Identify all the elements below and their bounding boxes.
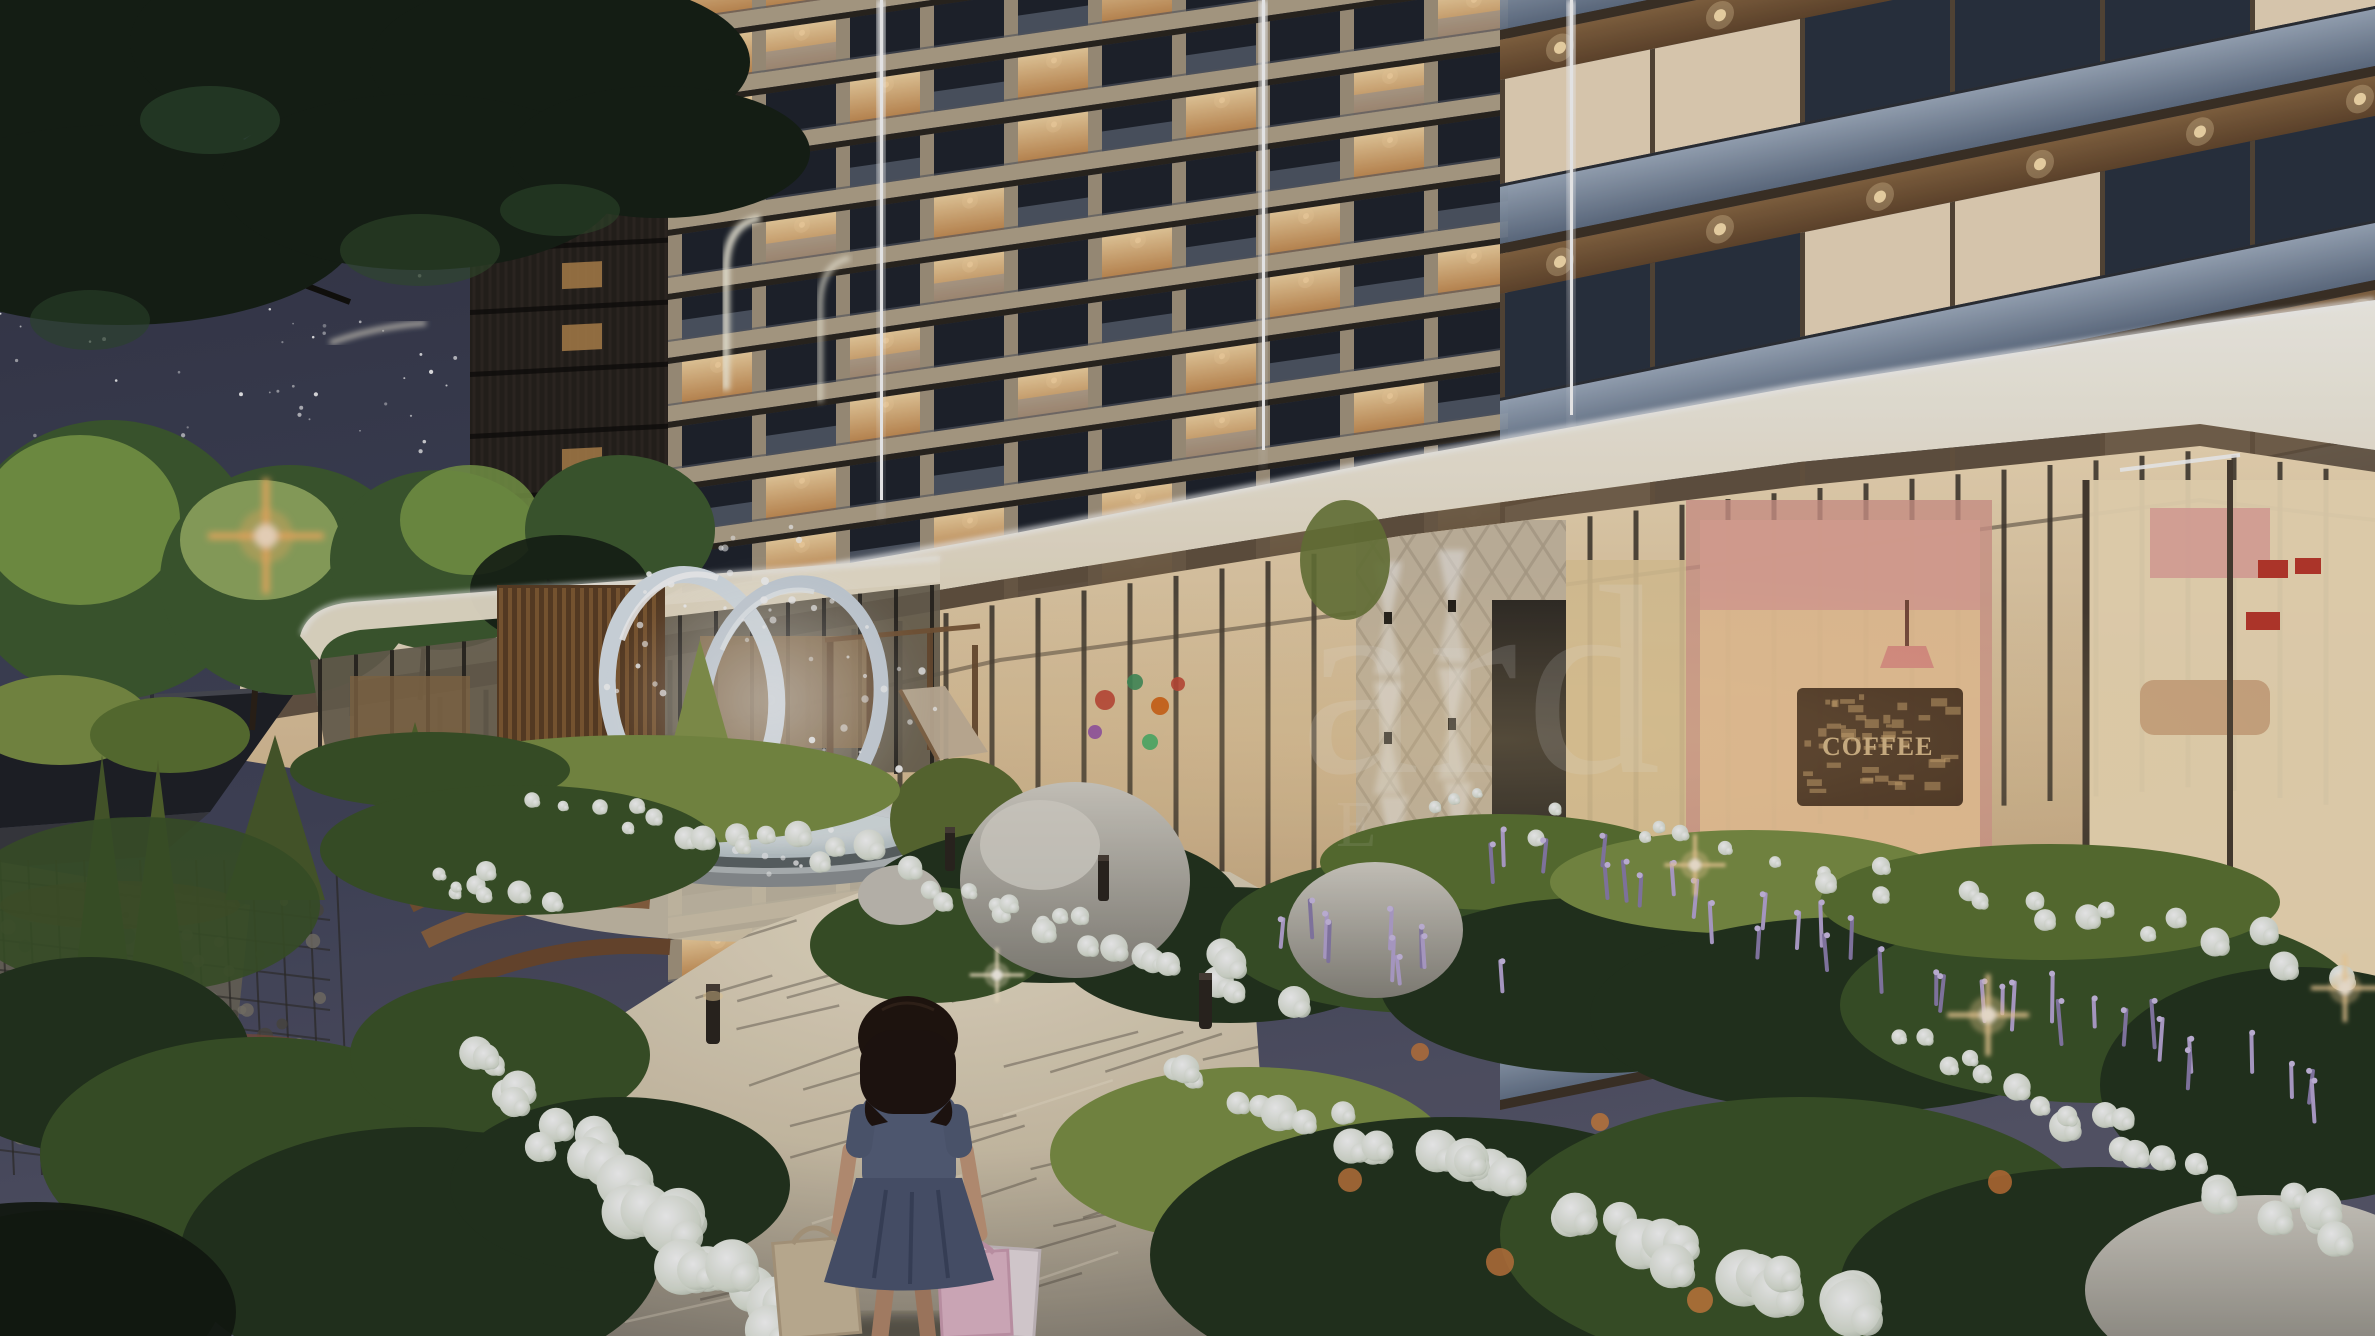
night-render-scene: COFFEE [0,0,2375,1336]
vignette [0,0,2375,1336]
